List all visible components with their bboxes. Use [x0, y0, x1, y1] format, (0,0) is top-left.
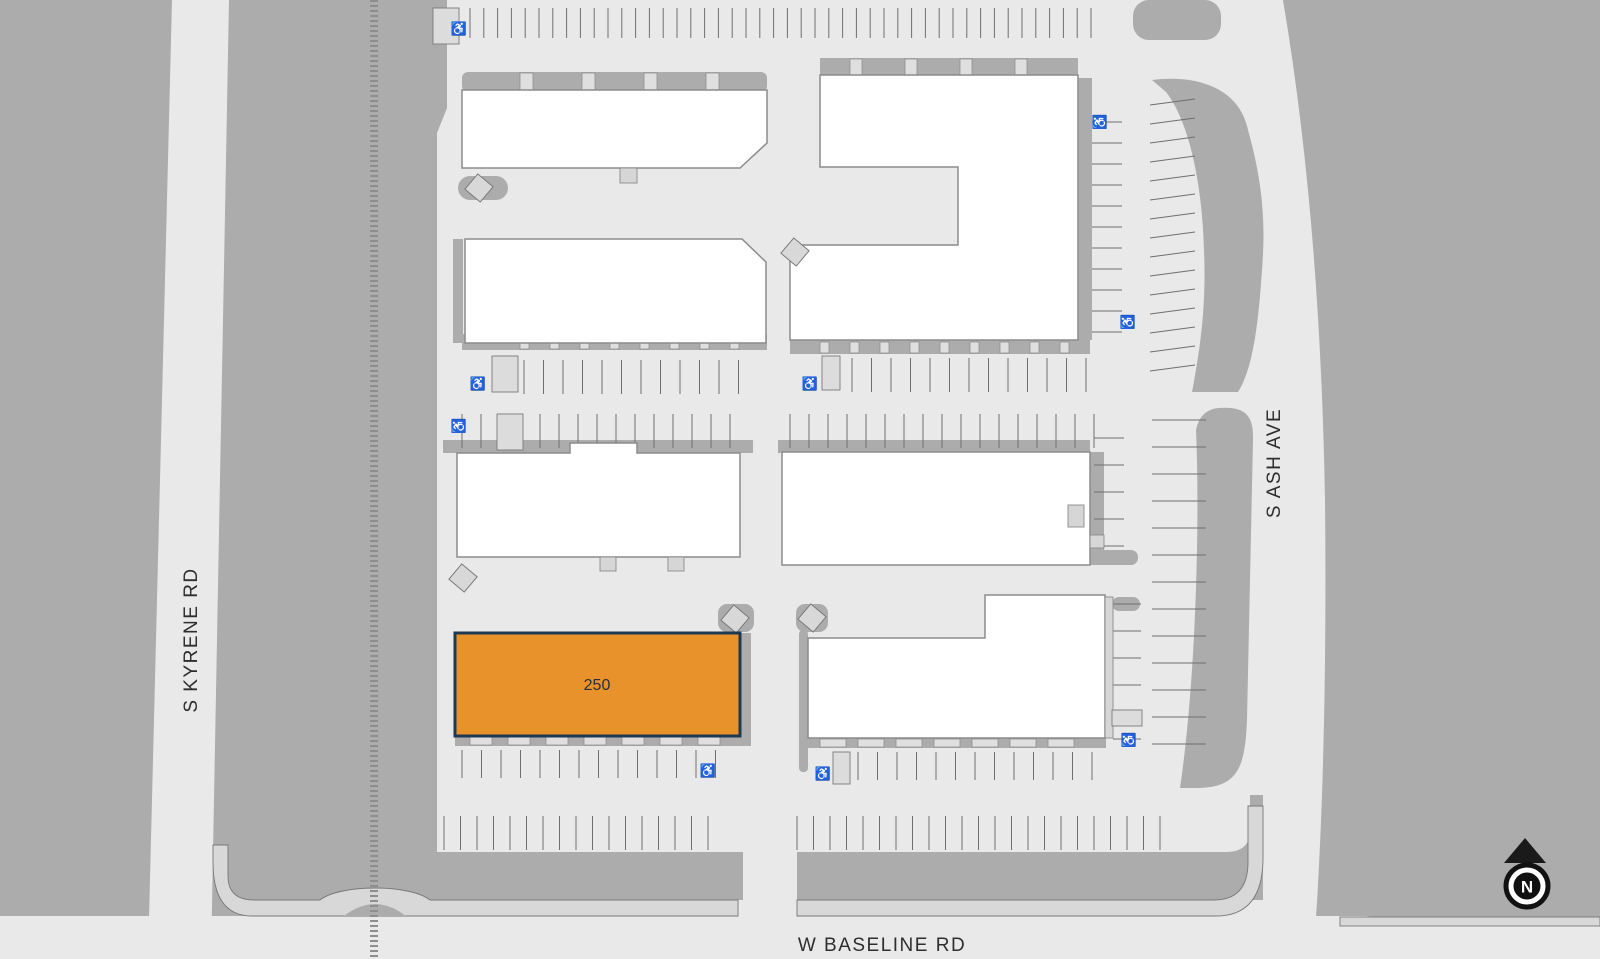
- stub-b5: [1090, 550, 1138, 565]
- accessible-stall-b4: [497, 414, 523, 450]
- column-tab: [1030, 342, 1039, 353]
- column-tab: [582, 73, 595, 92]
- column-tab: [905, 59, 917, 75]
- column-tab: [706, 73, 719, 92]
- site-plan: 250 ♿ ♿ ♿ ♿ ♿ ♿ ♿ ♿ ♿ S KYRENE RD S ASH …: [0, 0, 1600, 959]
- entry-tab-b1: [620, 168, 637, 183]
- column-tab: [1000, 342, 1009, 353]
- column-tab: [520, 73, 533, 92]
- entry-tab-b5: [1068, 505, 1084, 527]
- street-label-baseline: W BASELINE RD: [798, 935, 966, 956]
- street-label-ash: S ASH AVE: [1264, 408, 1285, 518]
- column-tab: [644, 73, 657, 92]
- column-tab: [858, 739, 884, 747]
- wheelchair-icon: ♿: [700, 763, 716, 778]
- building-west-2: [465, 239, 766, 343]
- compass-n-label: N: [1521, 878, 1533, 897]
- accessible-stall-b3: [492, 356, 518, 392]
- wheelchair-icon: ♿: [470, 376, 486, 391]
- service-band-b1: [462, 72, 767, 92]
- column-tab: [850, 342, 859, 353]
- wheelchair-icon: ♿: [451, 21, 467, 36]
- column-tab: [960, 59, 972, 75]
- entry-tab-b5-east: [1090, 535, 1104, 548]
- building-west-3: [457, 443, 740, 557]
- sidewalk-east: [1340, 917, 1600, 926]
- accessible-stall-b2: [822, 356, 840, 390]
- accessible-stall-b7: [833, 752, 850, 784]
- wheelchair-icon: ♿: [451, 418, 466, 434]
- column-tab: [850, 59, 862, 75]
- column-tab: [1010, 739, 1036, 747]
- wheelchair-icon: ♿: [1120, 314, 1135, 330]
- building-east-3: [782, 452, 1090, 565]
- service-band-b2-east: [1078, 78, 1092, 340]
- column-tabs-b2-south: [820, 342, 1069, 353]
- column-tab: [896, 739, 922, 747]
- column-tab: [820, 739, 846, 747]
- entry-tab-b4-a: [600, 557, 616, 571]
- service-band-b7-west: [799, 630, 808, 772]
- column-tab: [1015, 59, 1027, 75]
- column-tab: [910, 342, 919, 353]
- column-tab: [940, 342, 949, 353]
- building-northwest: [462, 90, 767, 168]
- pad-band-b5: [778, 440, 1090, 453]
- accessible-stall-east: [1112, 710, 1142, 726]
- wheelchair-icon: ♿: [815, 766, 831, 781]
- wheelchair-icon: ♿: [802, 376, 818, 391]
- column-tab: [820, 342, 829, 353]
- street-label-kyrene: S KYRENE RD: [181, 567, 202, 712]
- wheelchair-icon: ♿: [1092, 114, 1107, 130]
- column-tab: [970, 342, 979, 353]
- column-tab: [880, 342, 889, 353]
- column-tab: [1048, 739, 1074, 747]
- suite-250-label: 250: [584, 677, 611, 694]
- landscape-island-north: [1133, 0, 1221, 40]
- column-tabs-b7: [820, 739, 1074, 747]
- service-band-suite-east: [740, 633, 751, 736]
- column-tab: [934, 739, 960, 747]
- entry-tab-b4-b: [668, 557, 684, 571]
- landscape-strip-southwest: [437, 852, 743, 900]
- column-tab: [1060, 342, 1069, 353]
- wheelchair-icon: ♿: [1121, 732, 1136, 748]
- column-tab: [972, 739, 998, 747]
- service-band-b3-west: [453, 239, 463, 343]
- site-plan-svg: 250 ♿ ♿ ♿ ♿ ♿ ♿ ♿ ♿ ♿ S KYRENE RD S ASH …: [0, 0, 1600, 959]
